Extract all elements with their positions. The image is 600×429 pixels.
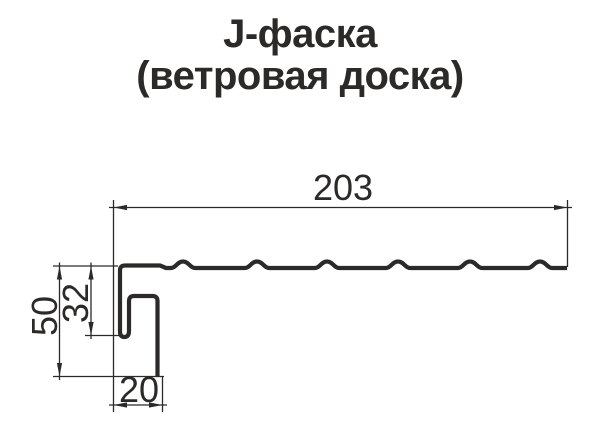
dimension-label-top-width: 203 — [313, 167, 373, 208]
profile-outline — [120, 262, 567, 377]
dimension-bottom-width: 20 — [109, 369, 167, 412]
arrowhead-top — [57, 266, 62, 280]
arrowhead-top — [88, 266, 93, 280]
dimension-label-inner-height: 32 — [55, 283, 96, 323]
arrowhead-bottom — [57, 363, 62, 377]
profile-diagram: 203 50 32 20 — [0, 0, 600, 429]
arrowhead-right — [554, 205, 568, 210]
dimension-top-width: 203 — [109, 167, 572, 412]
arrowhead-bottom — [88, 322, 93, 336]
arrowhead-left — [114, 205, 128, 210]
dimension-label-bottom-width: 20 — [119, 369, 159, 410]
technical-drawing-page: J-фаска (ветровая доска) 203 50 — [0, 0, 600, 429]
